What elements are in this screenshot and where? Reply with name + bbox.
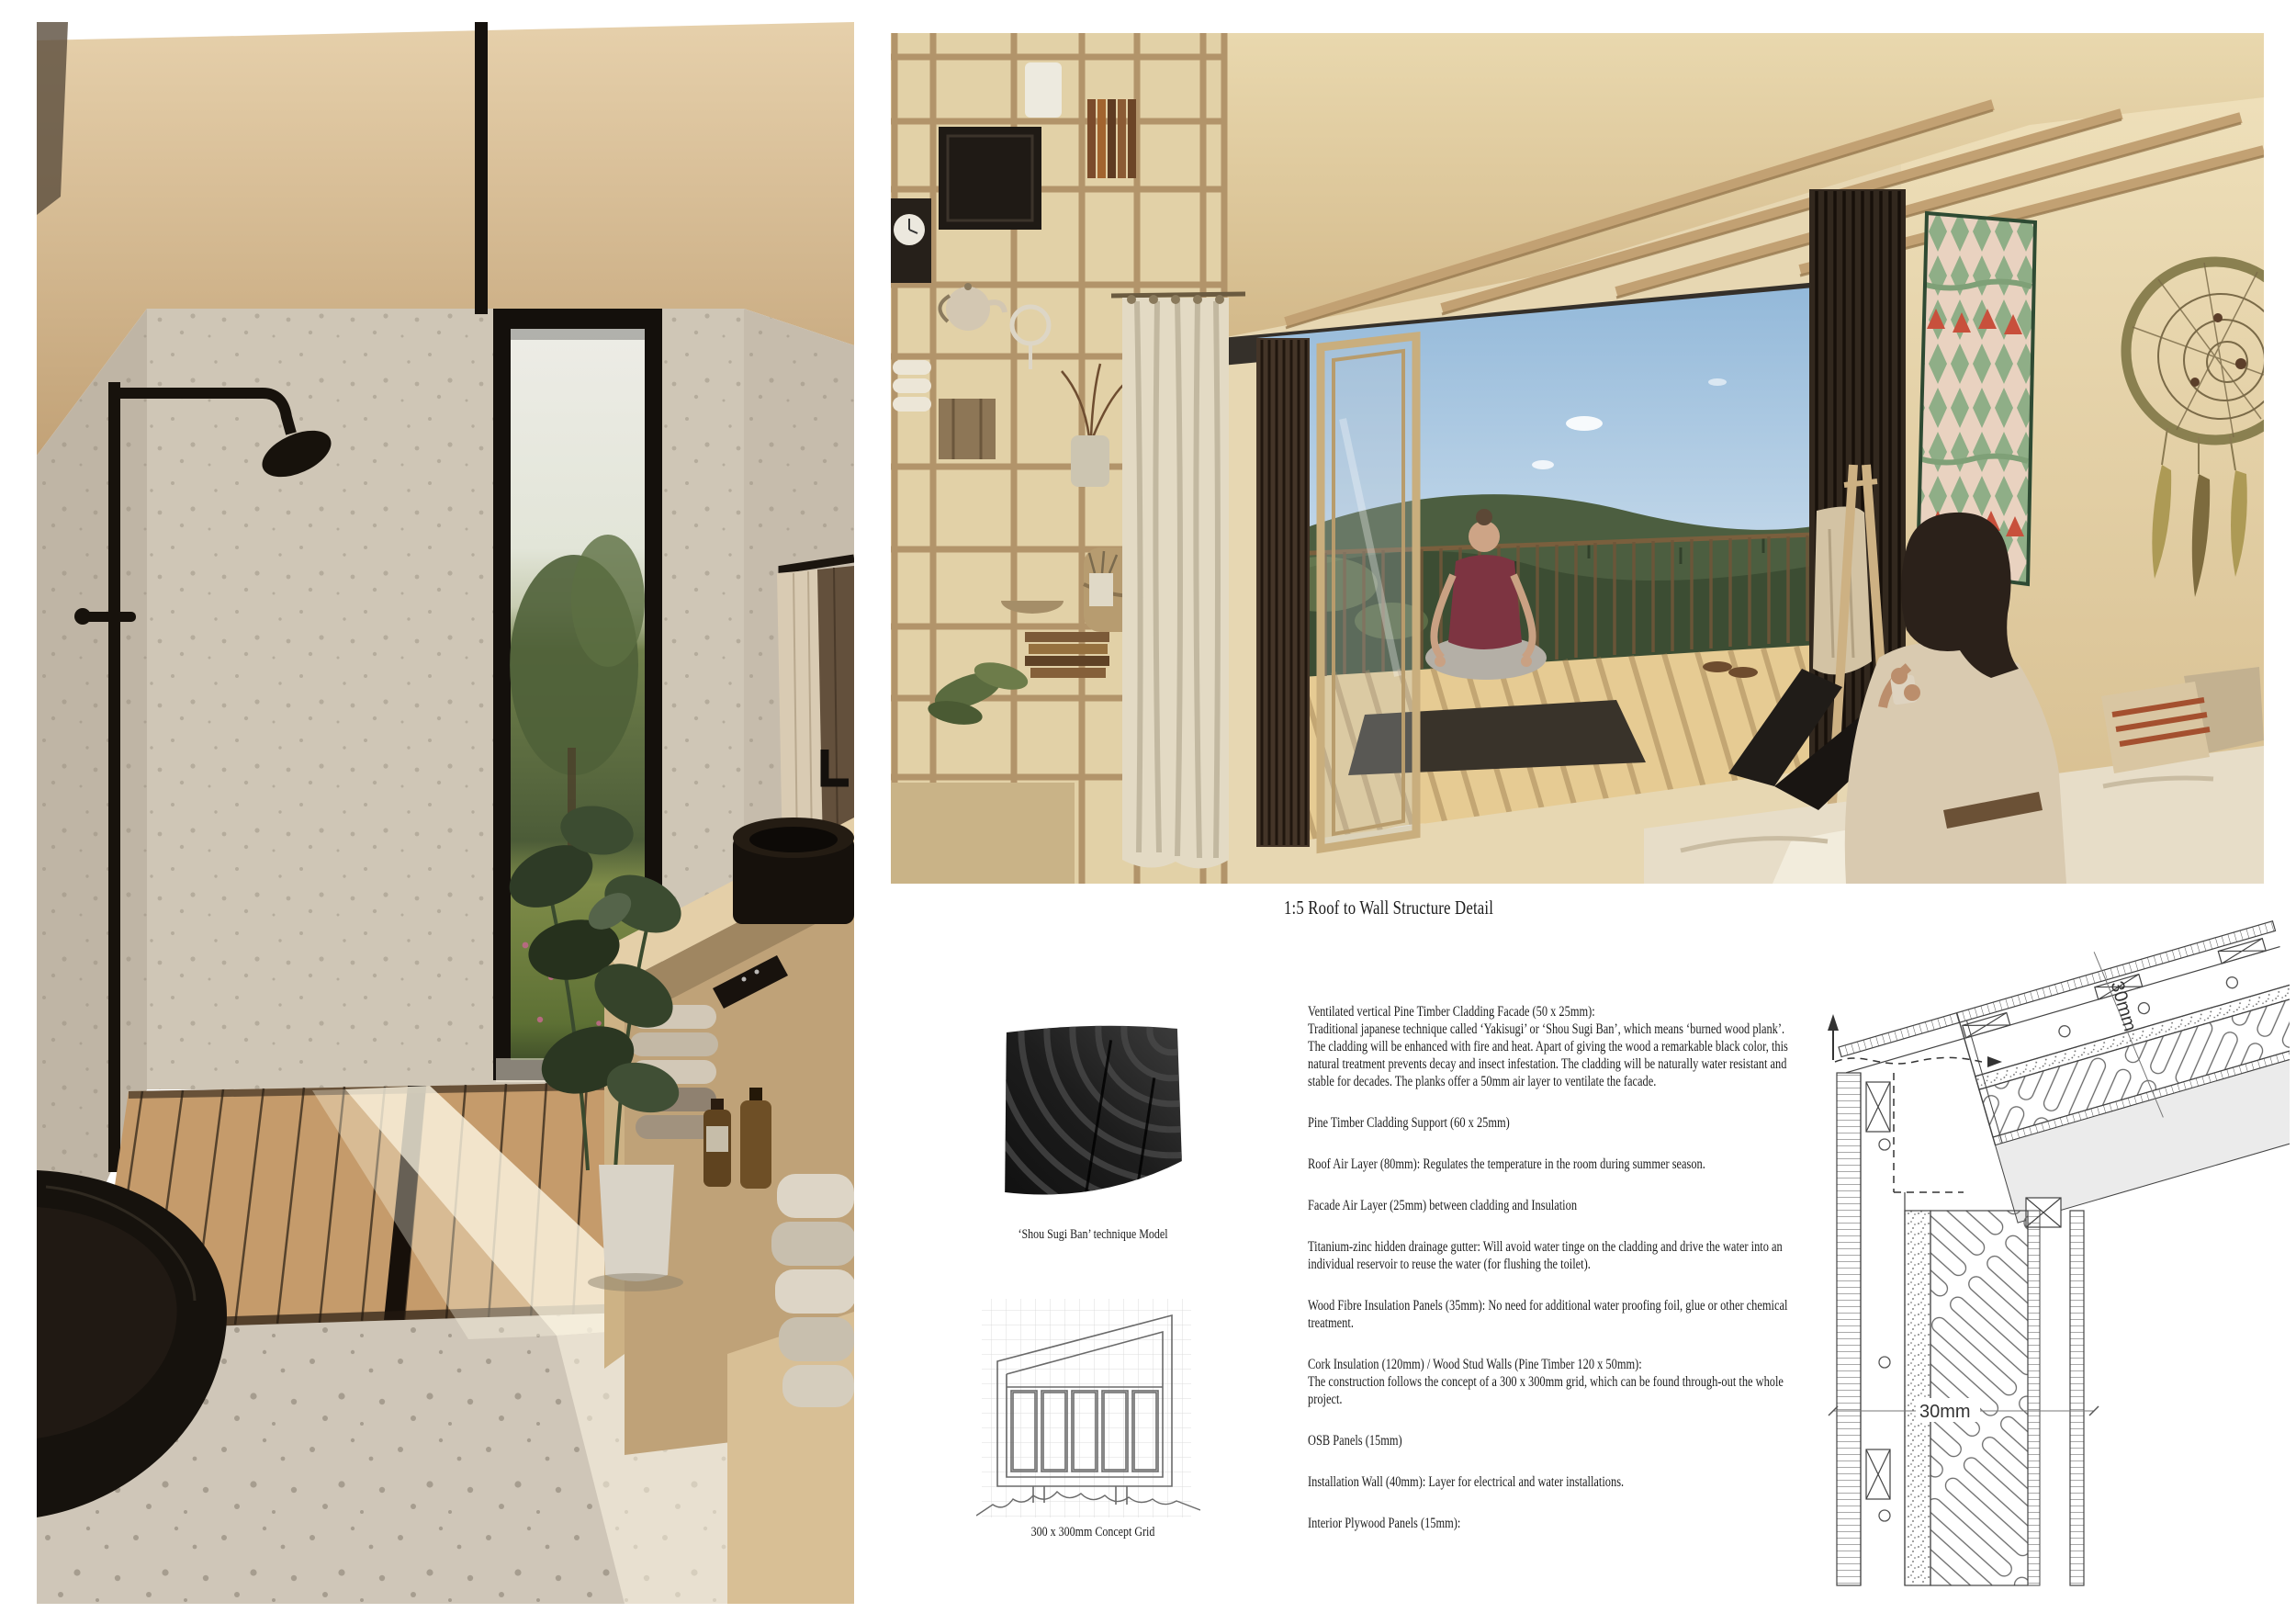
folded-linens	[893, 360, 931, 412]
wall-cladding	[1837, 1073, 1861, 1585]
note-paragraph: Interior Plywood Panels (15mm):	[1308, 1515, 1793, 1532]
bathroom-render-photo	[37, 22, 854, 1604]
note-paragraph: Wood Fibre Insulation Panels (35mm): No …	[1308, 1297, 1793, 1332]
installation-board	[2028, 1211, 2040, 1585]
towel-rail	[777, 558, 854, 858]
plant-pot	[599, 1165, 674, 1281]
airflow-arrow	[1987, 1056, 2002, 1067]
note-paragraph: Roof Air Layer (80mm): Regulates the tem…	[1308, 1156, 1793, 1173]
interior-render-photo	[891, 33, 2264, 884]
storage-box	[939, 399, 996, 459]
structure-detail-drawing: 30mm	[1826, 908, 2290, 1607]
note-paragraph: Cork Insulation (120mm) / Wood Stud Wall…	[1308, 1356, 1793, 1408]
framed-art	[939, 127, 1041, 230]
section-title: 1:5 Roof to Wall Structure Detail	[1284, 897, 1493, 919]
wall-battens	[1866, 1082, 1890, 1499]
vent-up-arrow	[1828, 1014, 1839, 1031]
cloud	[1566, 416, 1603, 431]
presentation-board: 1:5 Roof to Wall Structure Detail	[0, 0, 2296, 1624]
slatted-screen-door	[1256, 338, 1310, 847]
wall-air-gap-dimension: 30mm	[1919, 1402, 1971, 1422]
note-paragraph: Pine Timber Cladding Support (60 x 25mm)	[1308, 1114, 1793, 1132]
note-paragraph: Facade Air Layer (25mm) between cladding…	[1308, 1197, 1793, 1214]
interior-panel	[2070, 1211, 2084, 1585]
model-caption: ‘Shou Sugi Ban’ technique Model	[983, 1227, 1203, 1243]
note-paragraph: Titanium-zinc hidden drainage gutter: Wi…	[1308, 1238, 1793, 1273]
sandals	[1703, 661, 1732, 672]
shou-sugi-ban-model-image	[997, 1020, 1187, 1203]
note-paragraph: OSB Panels (15mm)	[1308, 1432, 1793, 1449]
construction-notes: Ventilated vertical Pine Timber Cladding…	[1308, 1003, 1793, 1556]
bathroom-render-scene	[37, 22, 854, 1604]
wall-dimension: 30mm	[1829, 1398, 2099, 1422]
black-washbasin	[733, 818, 854, 924]
white-canister	[1025, 62, 1062, 118]
linen-curtain	[1111, 294, 1245, 869]
note-paragraph: Ventilated vertical Pine Timber Cladding…	[1308, 1003, 1793, 1090]
concept-grid-sketch	[976, 1295, 1200, 1527]
interior-render-scene	[891, 33, 2264, 884]
books-row	[1087, 99, 1136, 178]
clock	[891, 198, 931, 283]
open-glass-door	[1321, 336, 1416, 849]
note-paragraph: Installation Wall (40mm): Layer for elec…	[1308, 1473, 1793, 1491]
grid-caption: 300 x 300mm Concept Grid	[983, 1525, 1203, 1540]
